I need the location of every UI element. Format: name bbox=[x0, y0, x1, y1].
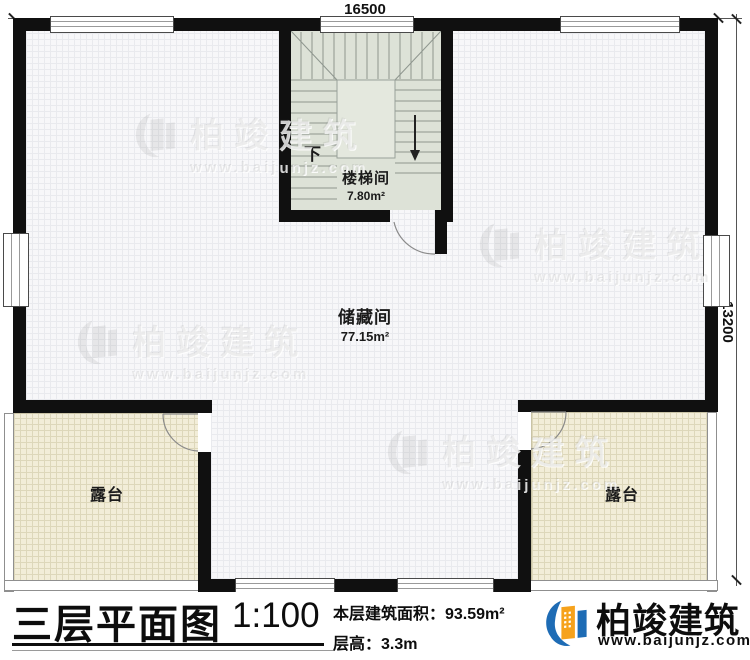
wall-divider-right bbox=[518, 450, 531, 592]
window-top-center bbox=[320, 16, 414, 33]
terrace-left-railing-bottom bbox=[4, 580, 213, 591]
window-right-wall bbox=[703, 235, 730, 307]
wall-bottom-pier-3 bbox=[492, 579, 531, 592]
window-left-wall bbox=[3, 233, 29, 307]
wall-stairwell-door-stub bbox=[435, 222, 447, 254]
floor-plan-canvas: 16500 13200 bbox=[0, 0, 750, 660]
door-opening-terrace-right bbox=[518, 412, 531, 450]
wall-terrace-right-top bbox=[518, 400, 718, 412]
terrace-left-railing-side bbox=[4, 413, 14, 592]
terrace-right-railing-bottom bbox=[525, 580, 718, 591]
stairwell-name: 楼梯间 bbox=[296, 167, 436, 188]
floor-area-text: 本层建筑面积：93.59m² bbox=[333, 600, 505, 624]
wall-left bbox=[13, 31, 26, 413]
storage-room-floor-lower bbox=[211, 400, 518, 579]
wall-divider-left bbox=[198, 452, 211, 592]
storage-name: 储藏间 bbox=[295, 303, 435, 328]
stairwell-area: 7.80m² bbox=[296, 189, 436, 203]
terrace-right-railing-side bbox=[707, 412, 717, 592]
window-top-right bbox=[560, 16, 680, 33]
plan-title: 三层平面图 bbox=[12, 592, 222, 650]
stair-direction-label: 下 bbox=[298, 140, 328, 165]
window-top-left bbox=[50, 16, 174, 33]
title-underline bbox=[12, 650, 334, 651]
wall-right bbox=[705, 31, 718, 412]
title-underline bbox=[12, 643, 324, 646]
wall-stairwell-left bbox=[279, 31, 291, 222]
wall-bottom-pier-1 bbox=[198, 579, 235, 592]
stairwell-label: 楼梯间 7.80m² bbox=[296, 167, 436, 203]
wall-bottom-pier-2 bbox=[333, 579, 397, 592]
title-block: 三层平面图 1:100 本层建筑面积：93.59m² 层高：3.3m 柏竣建筑 … bbox=[0, 592, 750, 660]
door-opening-terrace-left bbox=[198, 413, 211, 452]
storage-area: 77.15m² bbox=[295, 329, 435, 344]
brand-url: www.baijunjz.com bbox=[598, 632, 750, 649]
terrace-right-name: 露台 bbox=[562, 481, 682, 505]
wall-stairwell-bottom-b bbox=[435, 210, 453, 222]
terrace-left-name: 露台 bbox=[47, 481, 167, 505]
wall-stairwell-right bbox=[441, 31, 453, 222]
terrace-right-label: 露台 bbox=[562, 481, 682, 505]
plan-scale: 1:100 bbox=[232, 596, 320, 636]
wall-stairwell-bottom-a bbox=[279, 210, 390, 222]
floor-height-text: 层高：3.3m bbox=[333, 630, 417, 654]
terrace-left-label: 露台 bbox=[47, 481, 167, 505]
brand-logo-icon bbox=[538, 594, 592, 654]
dimension-line-right bbox=[736, 14, 737, 586]
wall-terrace-left-top bbox=[13, 400, 212, 413]
storage-label: 储藏间 77.15m² bbox=[295, 303, 435, 344]
